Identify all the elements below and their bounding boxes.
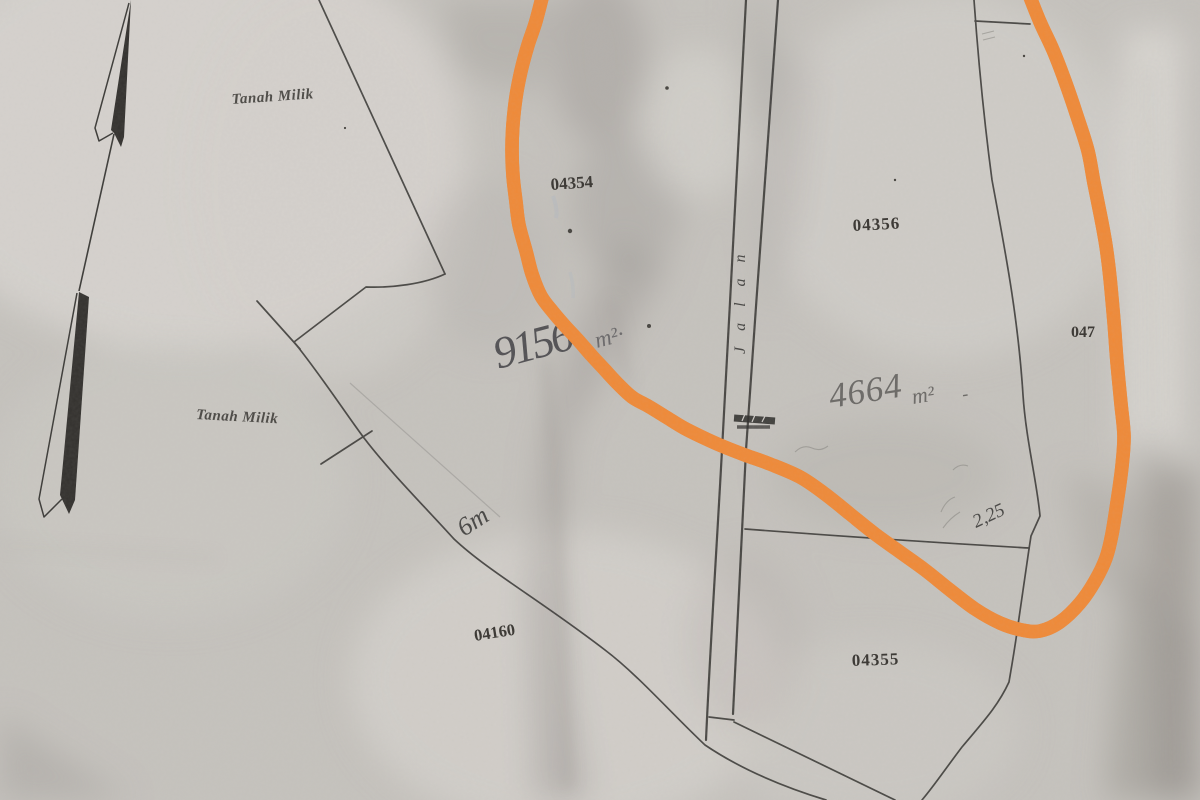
svg-text:047: 047 [1071, 324, 1095, 341]
svg-text:04355: 04355 [851, 649, 899, 670]
svg-text:04356: 04356 [852, 214, 900, 235]
svg-text:Jalan: Jalan [732, 238, 749, 354]
svg-text:04354: 04354 [550, 172, 594, 194]
